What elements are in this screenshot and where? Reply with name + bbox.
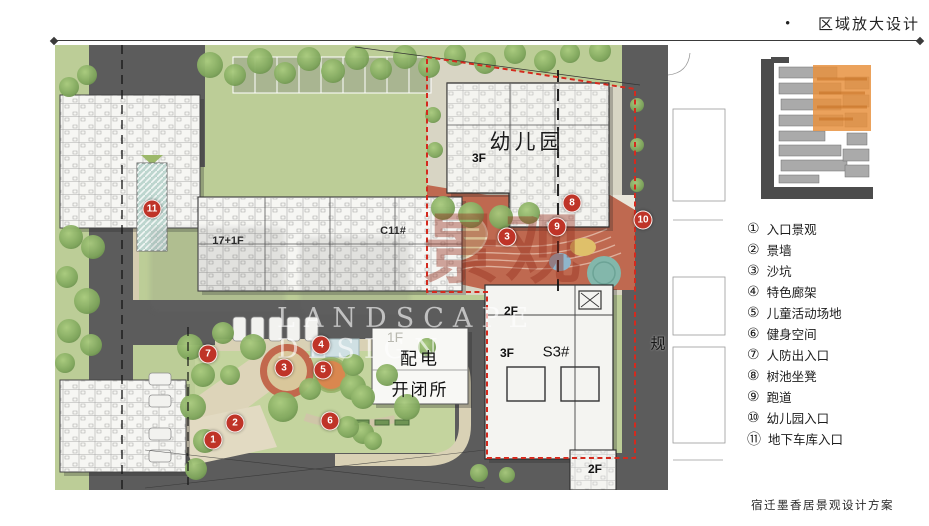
legend-item-label: 人防出入口	[767, 345, 830, 364]
legend-item-label: 树池坐凳	[767, 366, 817, 385]
legend-item-number: ⑩	[747, 409, 760, 426]
legend-item-label: 沙坑	[767, 261, 792, 280]
legend-item: ①入口景观	[747, 218, 922, 239]
legend-item-number: ⑨	[747, 388, 760, 405]
legend-item-label: 地下车库入口	[768, 429, 843, 448]
legend-item-label: 幼儿园入口	[767, 408, 830, 427]
legend-item-number: ②	[747, 241, 760, 258]
watermark-text: LANDSCAPE DESIGN	[277, 303, 697, 365]
legend-item-label: 儿童活动场地	[767, 303, 842, 322]
legend-item: ⑧树池坐凳	[747, 365, 922, 386]
page-title: •区域放大设计	[785, 13, 920, 34]
legend-item-label: 入口景观	[767, 219, 817, 238]
legend-item-label: 健身空间	[767, 324, 817, 343]
key-map	[757, 57, 884, 203]
legend-item-label: 特色廊架	[767, 282, 817, 301]
legend-item-number: ①	[747, 220, 760, 237]
legend-item: ②景墙	[747, 239, 922, 260]
legend-item-label: 景墙	[767, 240, 792, 259]
watermark-block	[150, 227, 285, 312]
legend-item-label: 跑道	[767, 387, 792, 406]
legend-item-number: ⑥	[747, 325, 760, 342]
legend: ①入口景观②景墙③沙坑④特色廊架⑤儿童活动场地⑥健身空间⑦人防出入口⑧树池坐凳⑨…	[747, 218, 922, 449]
page-title-text: 区域放大设计	[818, 16, 920, 33]
legend-list: ①入口景观②景墙③沙坑④特色廊架⑤儿童活动场地⑥健身空间⑦人防出入口⑧树池坐凳⑨…	[747, 218, 922, 449]
key-map-drawing	[757, 57, 884, 203]
watermark-cjk: 景观	[423, 213, 587, 289]
legend-item: ⑦人防出入口	[747, 344, 922, 365]
legend-item-number: ④	[747, 283, 760, 300]
header-rule	[53, 40, 921, 41]
legend-item: ⑤儿童活动场地	[747, 302, 922, 323]
site-plan: 景观 LANDSCAPE DESIGN 幼儿园3F17+1FC11#1F配电开闭…	[55, 45, 755, 490]
sheet: •区域放大设计	[0, 0, 929, 526]
legend-item: ③沙坑	[747, 260, 922, 281]
legend-item: ⑩幼儿园入口	[747, 407, 922, 428]
legend-item: ⑥健身空间	[747, 323, 922, 344]
legend-item-number: ⑪	[747, 429, 761, 449]
legend-item-number: ⑧	[747, 367, 760, 384]
offsite-east	[668, 45, 755, 490]
project-title: 宿迁墨香居景观设计方案	[751, 497, 894, 513]
legend-item: ④特色廊架	[747, 281, 922, 302]
legend-item-number: ③	[747, 262, 760, 279]
legend-item: ⑪地下车库入口	[747, 428, 922, 449]
legend-item: ⑨跑道	[747, 386, 922, 407]
legend-item-number: ⑦	[747, 346, 760, 363]
keymap-highlight	[813, 65, 871, 131]
legend-item-number: ⑤	[747, 304, 760, 321]
title-bullet-icon: •	[785, 15, 792, 30]
